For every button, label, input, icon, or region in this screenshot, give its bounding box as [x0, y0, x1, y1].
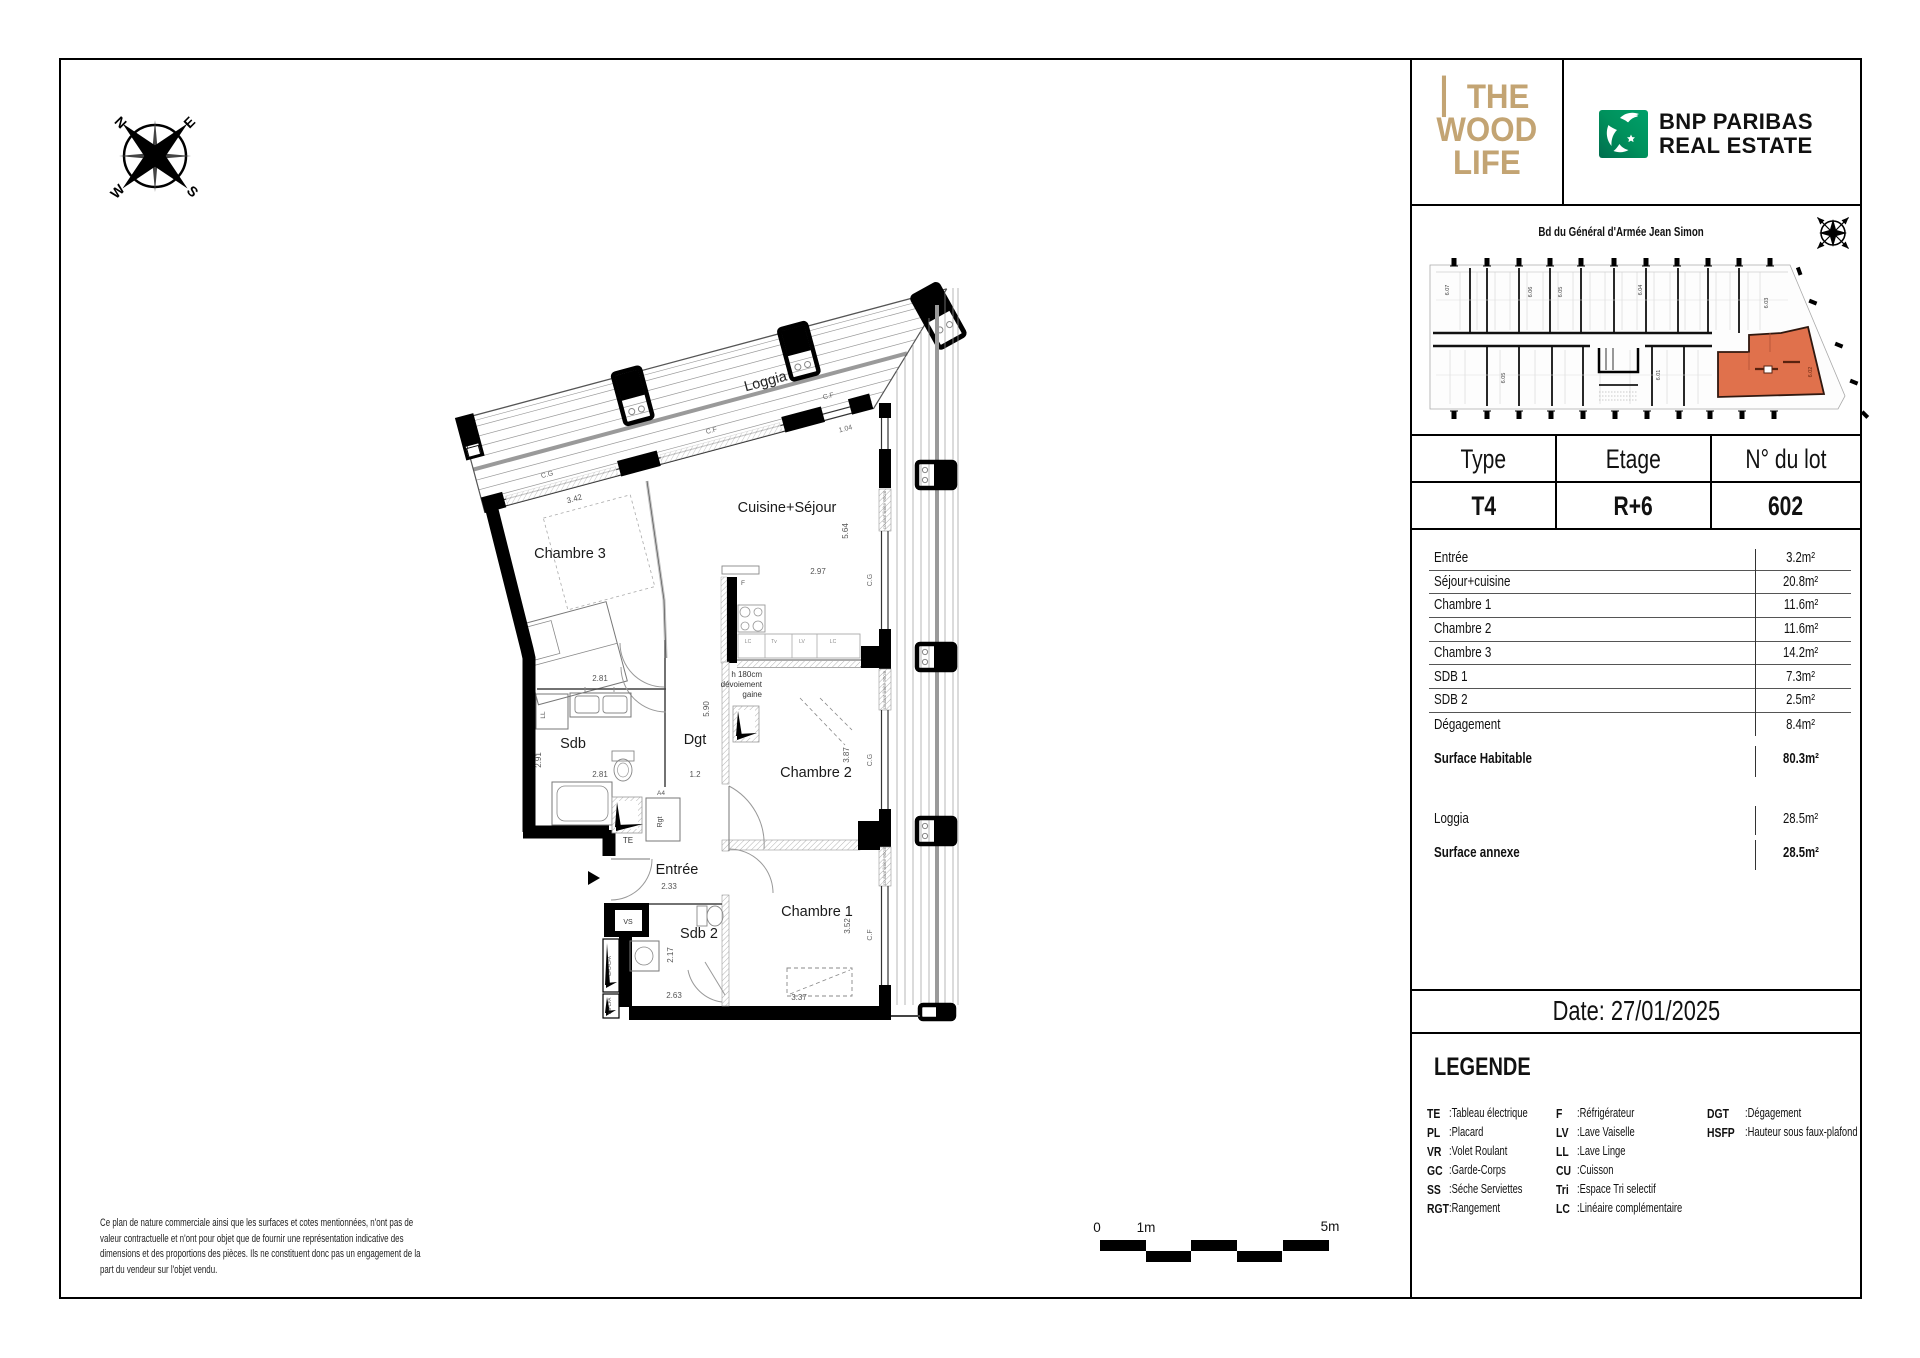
svg-text:SO-CFA: SO-CFA: [607, 998, 612, 1015]
svg-text:2.97: 2.97: [810, 567, 826, 576]
svg-text:C.G: C.G: [867, 754, 874, 766]
svg-text:6.07: 6.07: [1445, 285, 1451, 296]
svg-text:coulant limite 90cm: coulant limite 90cm: [882, 490, 887, 529]
svg-text:3.87: 3.87: [842, 747, 851, 763]
svg-text:1.2: 1.2: [689, 770, 701, 779]
svg-text:gaine: gaine: [742, 690, 762, 699]
svg-text:Sdb 2: Sdb 2: [680, 926, 718, 942]
svg-text:6.02: 6.02: [1808, 367, 1814, 378]
svg-text:Entrée: Entrée: [656, 862, 699, 878]
svg-text:6.05: 6.05: [1558, 287, 1564, 298]
svg-text:h 180cm: h 180cm: [731, 670, 762, 679]
svg-text:3.42: 3.42: [566, 492, 584, 505]
svg-text:LL: LL: [540, 711, 547, 719]
svg-text:2.81: 2.81: [592, 770, 608, 779]
svg-text:6.03: 6.03: [1764, 298, 1770, 309]
svg-text:S: S: [184, 182, 202, 200]
svg-text:LC: LC: [745, 639, 752, 645]
svg-text:C.G: C.G: [540, 470, 554, 480]
svg-text:Rgt: Rgt: [657, 817, 664, 828]
svg-text:A4: A4: [657, 790, 665, 797]
svg-text:C.F: C.F: [705, 426, 718, 436]
svg-text:coulant limite 90cm: coulant limite 90cm: [882, 670, 887, 709]
svg-text:5.90: 5.90: [702, 701, 711, 717]
svg-text:VS: VS: [623, 919, 633, 926]
svg-text:6.06: 6.06: [1528, 287, 1534, 298]
svg-text:W: W: [107, 180, 128, 201]
svg-text:LC: LC: [830, 639, 837, 645]
svg-text:3.37: 3.37: [791, 993, 807, 1002]
svg-text:2.33: 2.33: [661, 882, 677, 891]
svg-text:coulant limite 90cm: coulant limite 90cm: [882, 846, 887, 885]
svg-text:Chambre 1: Chambre 1: [781, 904, 853, 920]
svg-text:C.F: C.F: [822, 392, 835, 402]
svg-text:Sdb: Sdb: [560, 736, 586, 752]
svg-text:3.52: 3.52: [843, 918, 852, 934]
svg-text:6.04: 6.04: [1638, 285, 1644, 296]
svg-text:2.81: 2.81: [592, 674, 608, 683]
svg-text:C.F: C.F: [867, 929, 874, 940]
svg-text:C.G: C.G: [867, 574, 874, 586]
svg-text:6.05: 6.05: [1501, 373, 1507, 384]
svg-text:LV: LV: [799, 639, 805, 645]
svg-text:Tv: Tv: [771, 639, 777, 645]
svg-text:1m: 1m: [1137, 1220, 1156, 1235]
svg-text:dévoiement: dévoiement: [721, 680, 763, 689]
svg-text:2.17: 2.17: [666, 947, 675, 963]
svg-text:2.63: 2.63: [666, 991, 682, 1000]
svg-text:F: F: [741, 580, 745, 587]
svg-text:5.64: 5.64: [841, 523, 850, 539]
svg-text:Chambre 3: Chambre 3: [534, 546, 606, 562]
svg-text:TE: TE: [623, 836, 633, 845]
svg-text:6.01: 6.01: [1656, 370, 1662, 381]
svg-text:Dgt: Dgt: [684, 732, 707, 748]
svg-text:Cuisine+Séjour: Cuisine+Séjour: [738, 500, 837, 516]
svg-text:1.04: 1.04: [838, 424, 853, 434]
svg-text:CFO-CFA: CFO-CFA: [607, 956, 612, 976]
svg-text:Chambre 2: Chambre 2: [780, 765, 852, 781]
svg-text:5m: 5m: [1321, 1219, 1340, 1234]
svg-text:0: 0: [1093, 1220, 1101, 1235]
svg-text:2.91: 2.91: [534, 752, 543, 768]
